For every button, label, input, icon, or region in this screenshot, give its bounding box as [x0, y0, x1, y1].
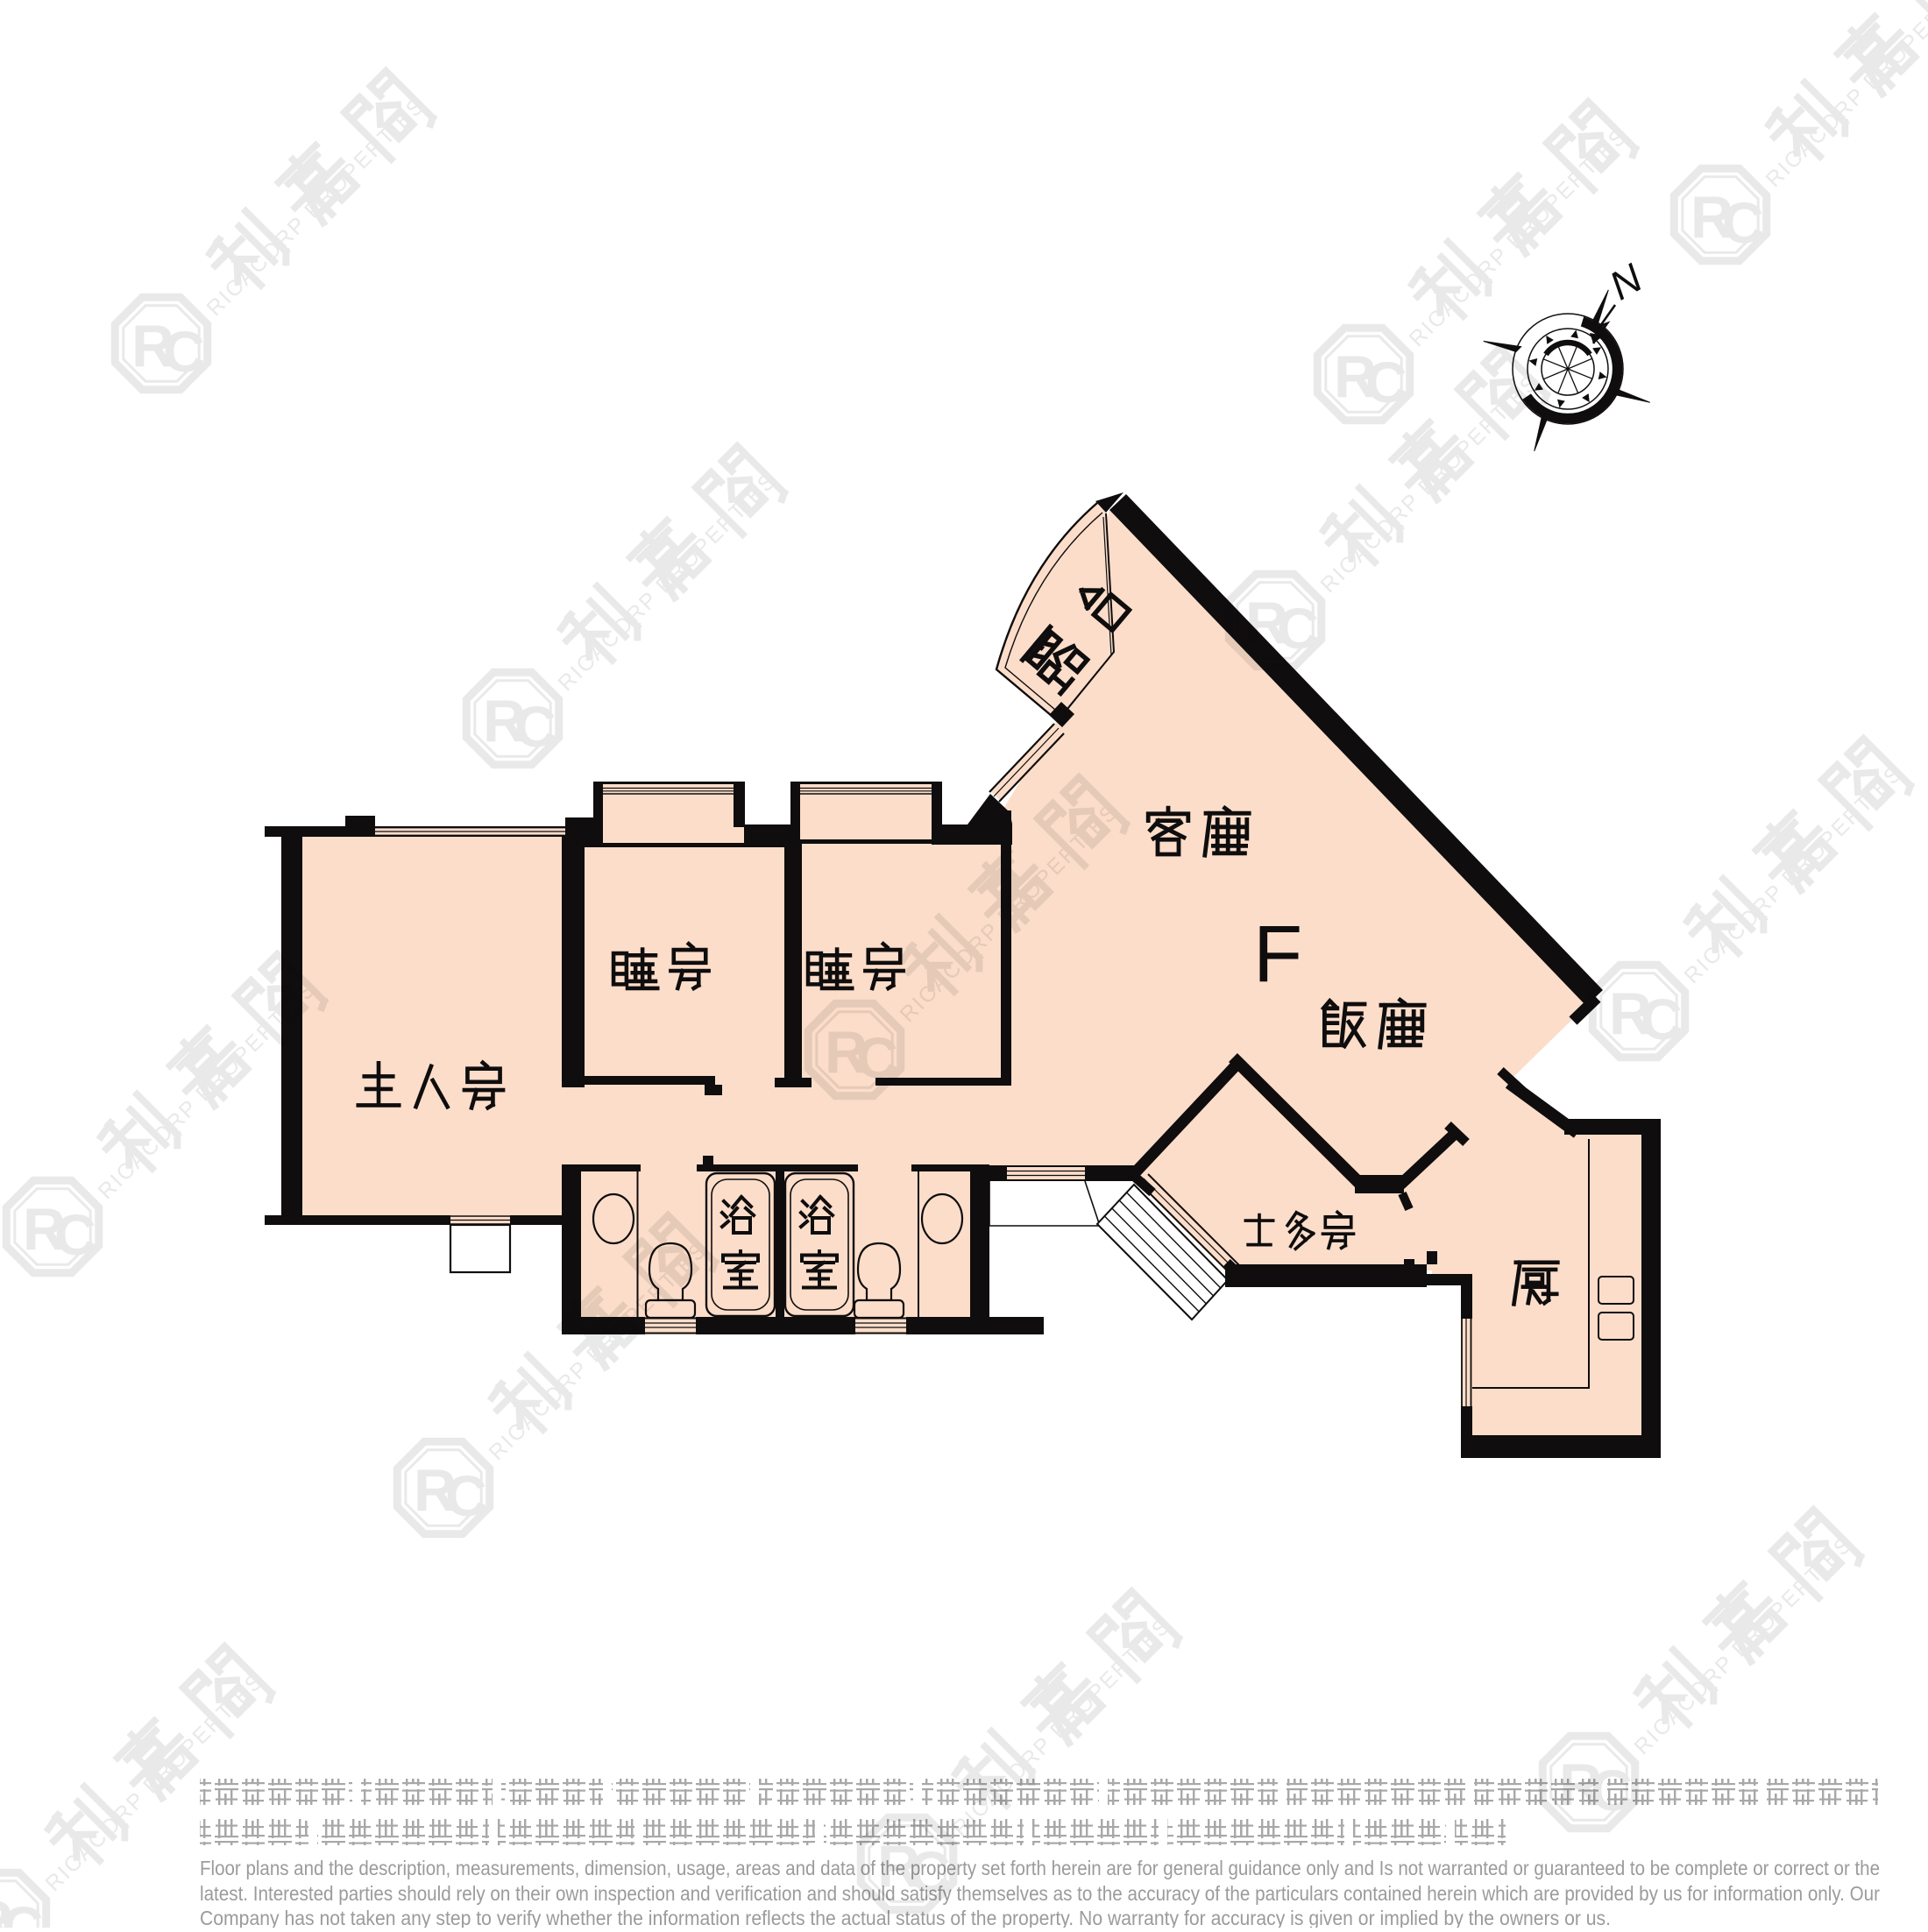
svg-text:Floor plans and the descriptio: Floor plans and the description, measure… — [200, 1857, 1880, 1879]
svg-text:F: F — [1253, 909, 1302, 999]
svg-text:latest. Interested parties sho: latest. Interested parties should rely o… — [200, 1882, 1880, 1905]
